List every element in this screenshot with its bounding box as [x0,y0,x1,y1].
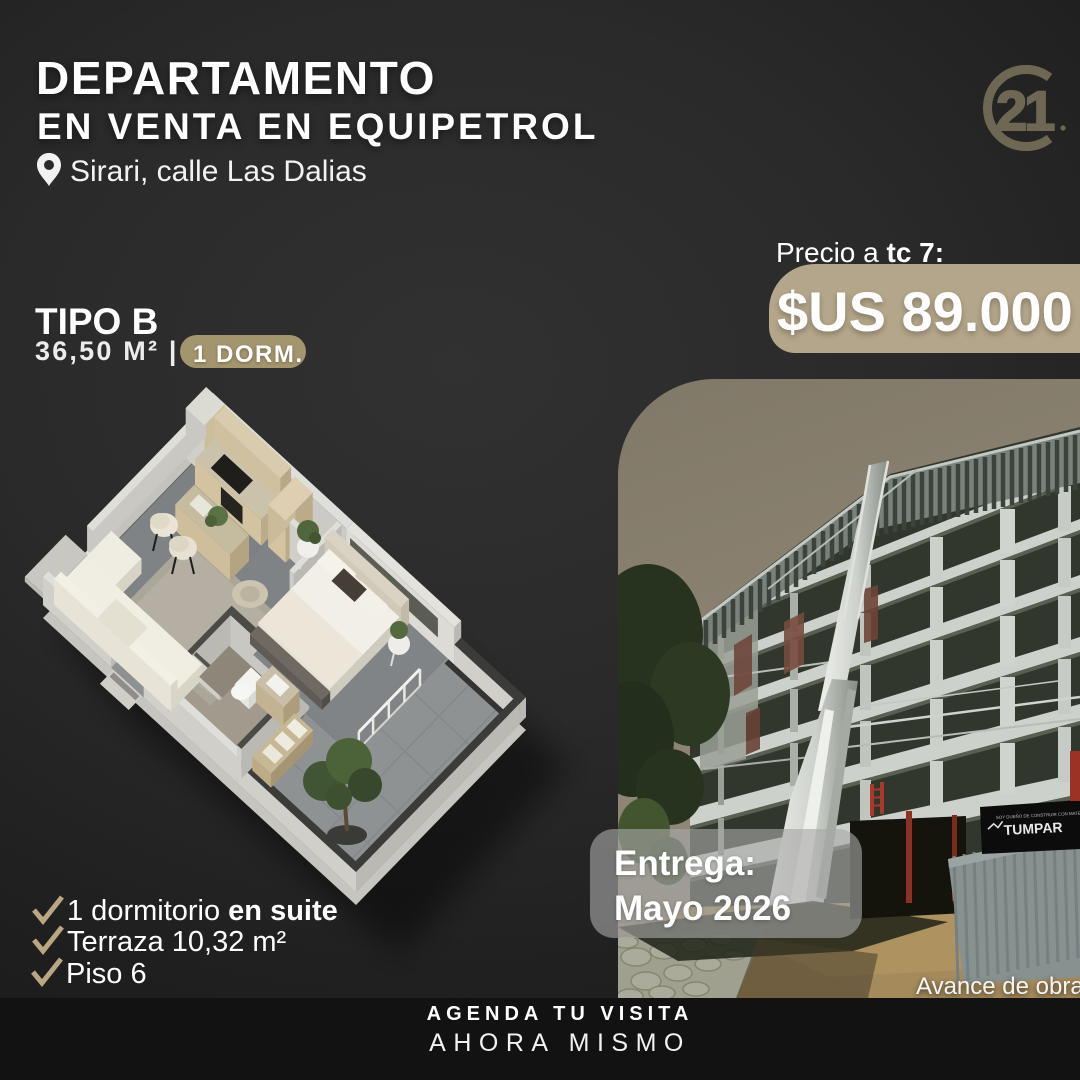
svg-text:TUMPAR: TUMPAR [1003,819,1063,838]
